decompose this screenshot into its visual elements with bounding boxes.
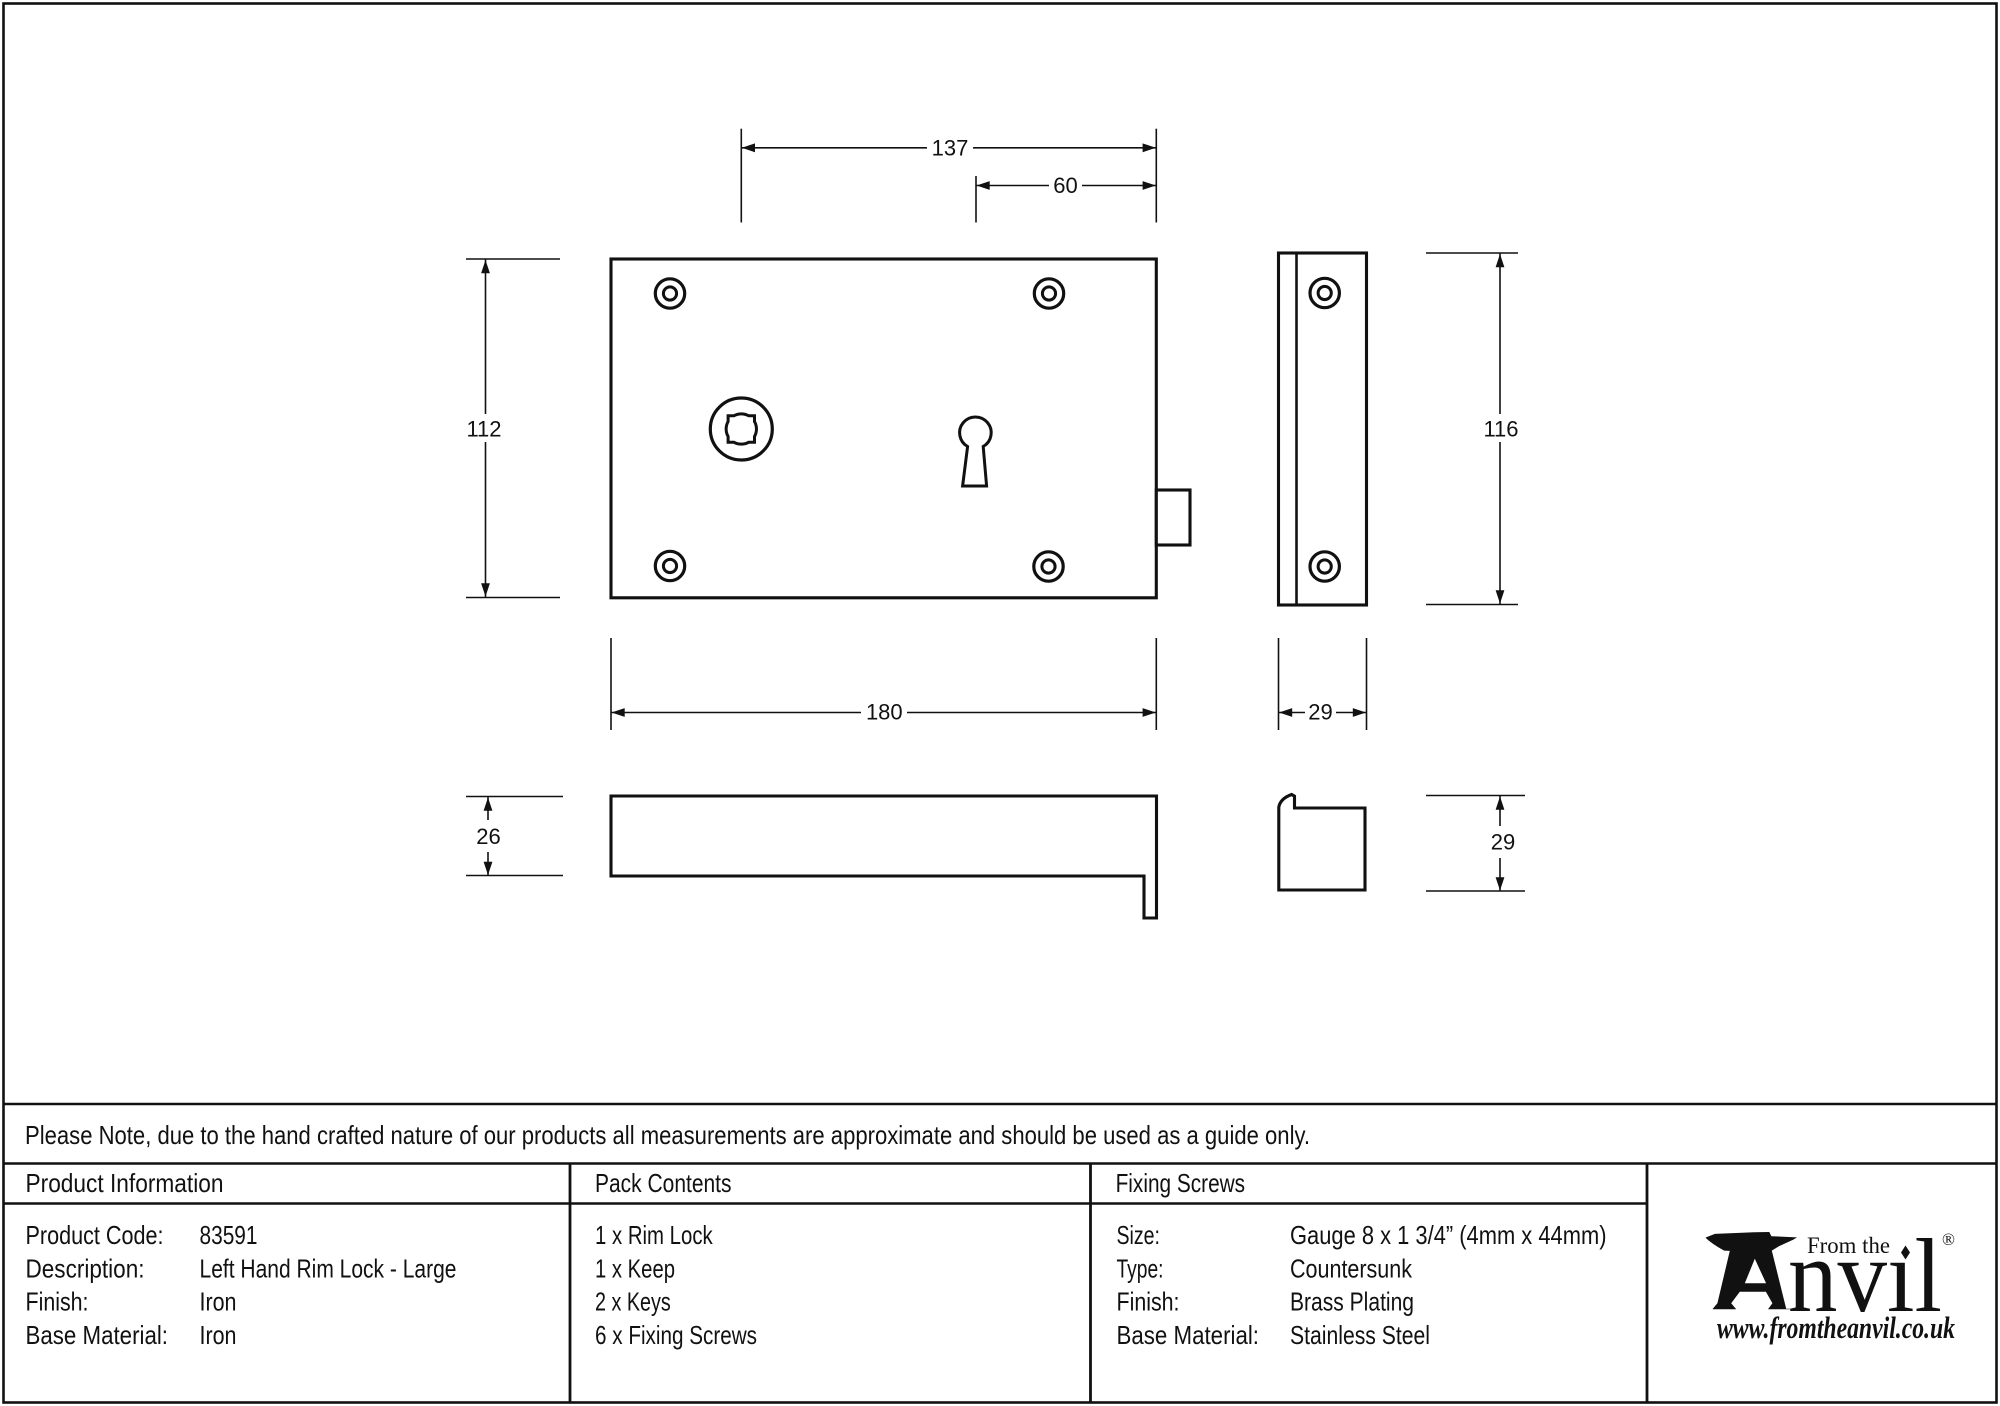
svg-text:26: 26 [476, 824, 500, 849]
svg-text:Product Information: Product Information [26, 1168, 224, 1198]
svg-text:1 x Rim Lock: 1 x Rim Lock [595, 1220, 713, 1250]
svg-text:Countersunk: Countersunk [1290, 1253, 1413, 1283]
svg-text:60: 60 [1053, 173, 1077, 198]
svg-text:6 x Fixing Screws: 6 x Fixing Screws [595, 1320, 757, 1350]
svg-text:Product Code:: Product Code: [26, 1220, 164, 1250]
svg-text:29: 29 [1308, 699, 1332, 724]
svg-text:Iron: Iron [200, 1320, 237, 1350]
svg-text:Gauge 8 x 1 3/4” (4mm x 44mm): Gauge 8 x 1 3/4” (4mm x 44mm) [1290, 1220, 1607, 1250]
svg-text:137: 137 [932, 135, 969, 160]
svg-text:180: 180 [866, 699, 903, 724]
svg-text:Pack Contents: Pack Contents [595, 1168, 732, 1198]
svg-text:112: 112 [466, 417, 501, 442]
svg-text:®: ® [1942, 1230, 1955, 1249]
svg-text:Please Note, due to the hand c: Please Note, due to the hand crafted nat… [25, 1120, 1310, 1150]
svg-text:1 x Keep: 1 x Keep [595, 1253, 675, 1283]
svg-text:Brass Plating: Brass Plating [1290, 1287, 1414, 1317]
svg-text:Finish:: Finish: [1117, 1287, 1180, 1317]
svg-text:Left Hand Rim Lock - Large: Left Hand Rim Lock - Large [200, 1253, 457, 1283]
svg-text:Base Material:: Base Material: [26, 1320, 169, 1350]
svg-text:Stainless Steel: Stainless Steel [1290, 1320, 1430, 1350]
svg-text:Fixing Screws: Fixing Screws [1116, 1168, 1246, 1198]
svg-text:Size:: Size: [1117, 1220, 1161, 1250]
svg-text:Iron: Iron [200, 1287, 237, 1317]
svg-text:83591: 83591 [200, 1220, 258, 1250]
svg-text:Base Material:: Base Material: [1117, 1320, 1260, 1350]
svg-text:Description:: Description: [26, 1253, 145, 1283]
svg-text:Type:: Type: [1117, 1253, 1164, 1283]
svg-text:Finish:: Finish: [26, 1287, 89, 1317]
svg-text:29: 29 [1491, 830, 1515, 855]
svg-text:116: 116 [1483, 417, 1518, 442]
svg-text:www.fromtheanvil.co.uk: www.fromtheanvil.co.uk [1717, 1310, 1955, 1345]
svg-text:2 x Keys: 2 x Keys [595, 1287, 671, 1317]
